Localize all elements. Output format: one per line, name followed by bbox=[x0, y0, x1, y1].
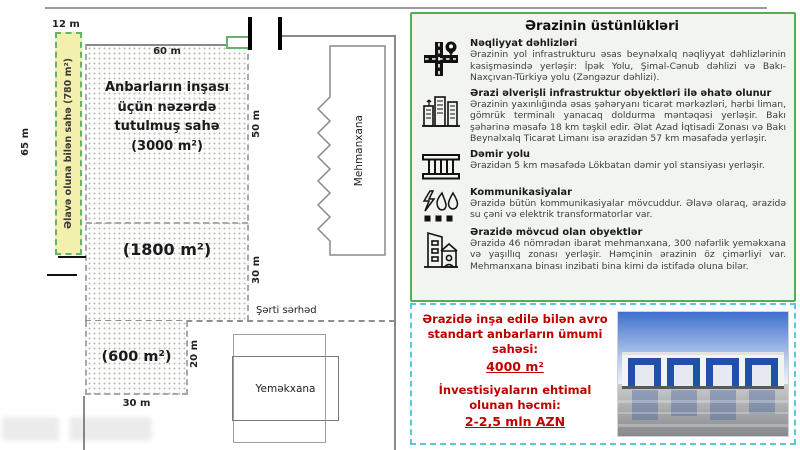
site-buildings-icon bbox=[418, 227, 464, 273]
road-line bbox=[45, 7, 767, 9]
dim-left-height: 65 m bbox=[20, 128, 31, 156]
advantage-heading: Nəqliyyat dəhlizləri bbox=[470, 38, 786, 49]
advantage-body: Ərazinin yol infrastrukturu əsas beynəlx… bbox=[470, 49, 786, 84]
advantages-title: Ərazinin üstünlükləri bbox=[418, 19, 786, 34]
entrance-gate-bar bbox=[278, 17, 282, 50]
boundary-tick-mark bbox=[58, 256, 86, 258]
railway-icon bbox=[418, 149, 464, 183]
investment-amount-value: 2-2,5 mln AZN bbox=[416, 414, 614, 431]
hotel-building: Mehmanxana bbox=[315, 45, 387, 257]
main-area-label: Anbarların inşası üçün nəzərdə tutulmuş … bbox=[94, 78, 240, 156]
advantage-section-railway: Dəmir yolu Ərazidən 5 km məsafədə Lökbat… bbox=[418, 149, 786, 183]
conditional-border-label: Şərti sərhəd bbox=[256, 305, 317, 316]
advantages-panel: Ərazinin üstünlükləri Nəqliyyat dəhlizlə… bbox=[410, 12, 796, 302]
dim-bottom-width: 30 m bbox=[85, 398, 188, 409]
dim-small-plot-height: 20 m bbox=[189, 340, 200, 368]
investment-amount-text: İnvestisiyaların ehtimal olunan həcmi: bbox=[439, 383, 592, 412]
advantage-body: Ərazinin yaxınlığında əsas şəhəryanı tic… bbox=[470, 99, 786, 145]
site-plan-slide: 12 m Əlavə oluna bilən sahə (780 m²) 65 … bbox=[0, 0, 800, 450]
city-buildings-icon bbox=[418, 88, 464, 145]
advantage-heading: Ərazidə mövcud olan obyektlər bbox=[470, 227, 786, 238]
dim-top-width: 12 m bbox=[52, 19, 80, 30]
warehouse-photo bbox=[617, 311, 789, 437]
advantage-section-communications: Kommunikasiyalar Ərazidə bütün kommunika… bbox=[418, 187, 786, 223]
advantage-body: Ərazidə 46 nömrədən ibarət mehmanxana, 3… bbox=[470, 238, 786, 273]
hotel-label: Mehmanxana bbox=[353, 115, 365, 186]
advantage-section-transport: Nəqliyyat dəhlizləri Ərazinin yol infras… bbox=[418, 38, 786, 84]
investment-area-text: Ərazidə inşa edilə bilən avro standart a… bbox=[422, 312, 607, 356]
boundary-line bbox=[394, 35, 396, 450]
advantage-heading: Dəmir yolu bbox=[470, 149, 786, 160]
utilities-icon bbox=[418, 187, 464, 223]
gate-marker-rect bbox=[226, 36, 250, 49]
advantage-body: Ərazidən 5 km məsafədə Lökbatan dəmir yo… bbox=[470, 160, 786, 172]
advantage-body: Ərazidə bütün kommunikasiyalar mövcuddur… bbox=[470, 198, 786, 221]
advantage-heading: Ərazi əlverişli infrastruktur obyektləri… bbox=[470, 88, 786, 99]
watermark bbox=[2, 417, 152, 441]
area-divider-line bbox=[86, 222, 248, 224]
dim-upper-right-height: 50 m bbox=[251, 110, 262, 138]
canteen-building: Yeməkxana bbox=[232, 356, 339, 421]
investment-box: Ərazidə inşa edilə bilən avro standart a… bbox=[410, 303, 796, 445]
investment-text-column: Ərazidə inşa edilə bilən avro standart a… bbox=[416, 312, 614, 431]
advantage-heading: Kommunikasiyalar bbox=[470, 187, 786, 198]
dim-lower-right-height: 30 m bbox=[251, 256, 262, 284]
dim-plot-width: 60 m bbox=[85, 46, 249, 57]
entrance-gate-bar bbox=[248, 17, 252, 50]
investment-area-value: 4000 m² bbox=[416, 359, 614, 376]
advantage-section-existing-objects: Ərazidə mövcud olan obyektlər Ərazidə 46… bbox=[418, 227, 786, 273]
extra-area-strip: Əlavə oluna bilən sahə (780 m²) bbox=[55, 32, 82, 255]
advantage-section-infrastructure: Ərazi əlverişli infrastruktur obyektləri… bbox=[418, 88, 786, 145]
small-area: (600 m²) bbox=[85, 321, 188, 395]
middle-area-label: (1800 m²) bbox=[85, 240, 249, 259]
small-area-label: (600 m²) bbox=[101, 349, 171, 365]
canteen-label: Yeməkxana bbox=[256, 383, 316, 395]
crossroads-pin-icon bbox=[418, 38, 464, 84]
extra-area-label: Əlavə oluna bilən sahə (780 m²) bbox=[63, 58, 74, 229]
boundary-tick-mark bbox=[47, 274, 77, 276]
boundary-line bbox=[282, 35, 396, 37]
